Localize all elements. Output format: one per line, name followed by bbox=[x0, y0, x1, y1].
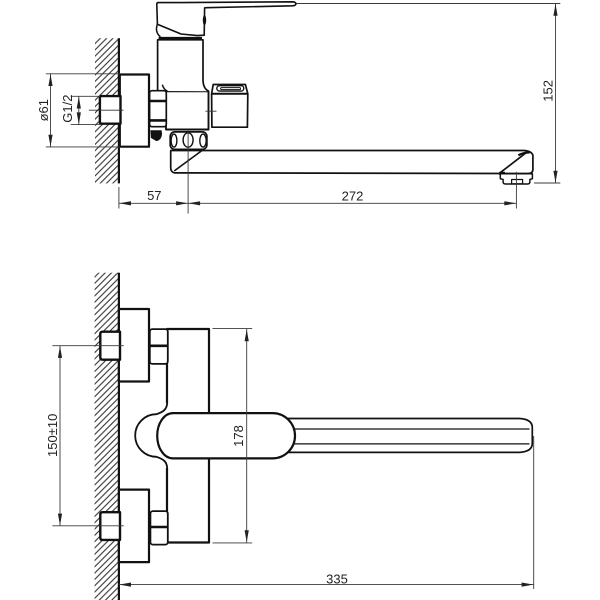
svg-text:272: 272 bbox=[342, 189, 364, 204]
svg-text:G1/2: G1/2 bbox=[60, 95, 75, 123]
svg-text:150±10: 150±10 bbox=[45, 414, 60, 457]
svg-text:ø61: ø61 bbox=[36, 99, 51, 121]
svg-text:335: 335 bbox=[326, 572, 348, 587]
svg-text:178: 178 bbox=[231, 425, 246, 447]
svg-text:57: 57 bbox=[147, 188, 161, 203]
svg-text:152: 152 bbox=[541, 80, 556, 102]
